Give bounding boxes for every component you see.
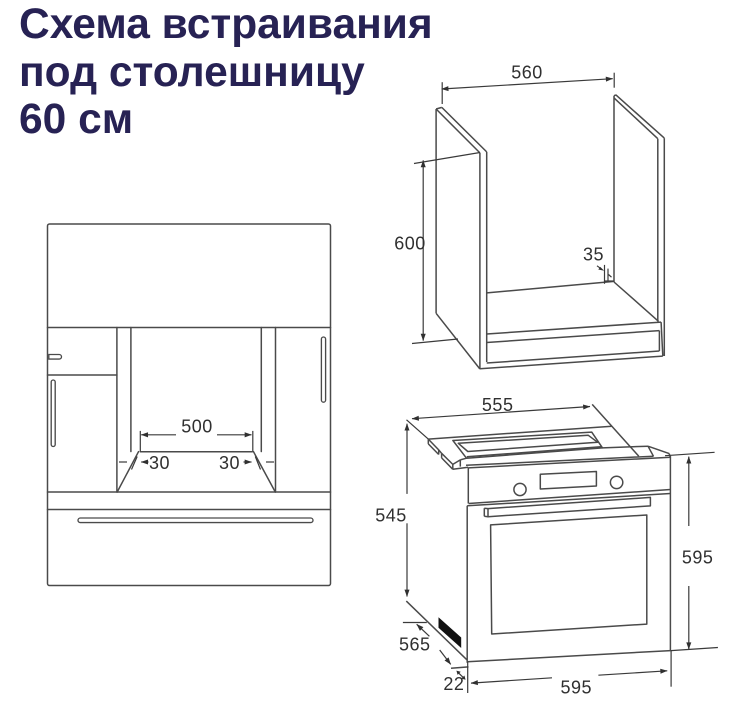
svg-text:555: 555 xyxy=(482,395,514,415)
svg-text:545: 545 xyxy=(375,505,407,525)
svg-text:30: 30 xyxy=(149,453,170,473)
svg-text:600: 600 xyxy=(394,234,426,254)
svg-text:22: 22 xyxy=(443,674,464,694)
svg-text:500: 500 xyxy=(181,416,213,436)
svg-text:30: 30 xyxy=(219,453,240,473)
svg-text:595: 595 xyxy=(561,678,593,698)
svg-text:35: 35 xyxy=(583,244,604,264)
svg-text:595: 595 xyxy=(682,548,714,568)
svg-text:560: 560 xyxy=(511,63,543,83)
svg-text:565: 565 xyxy=(399,635,431,655)
